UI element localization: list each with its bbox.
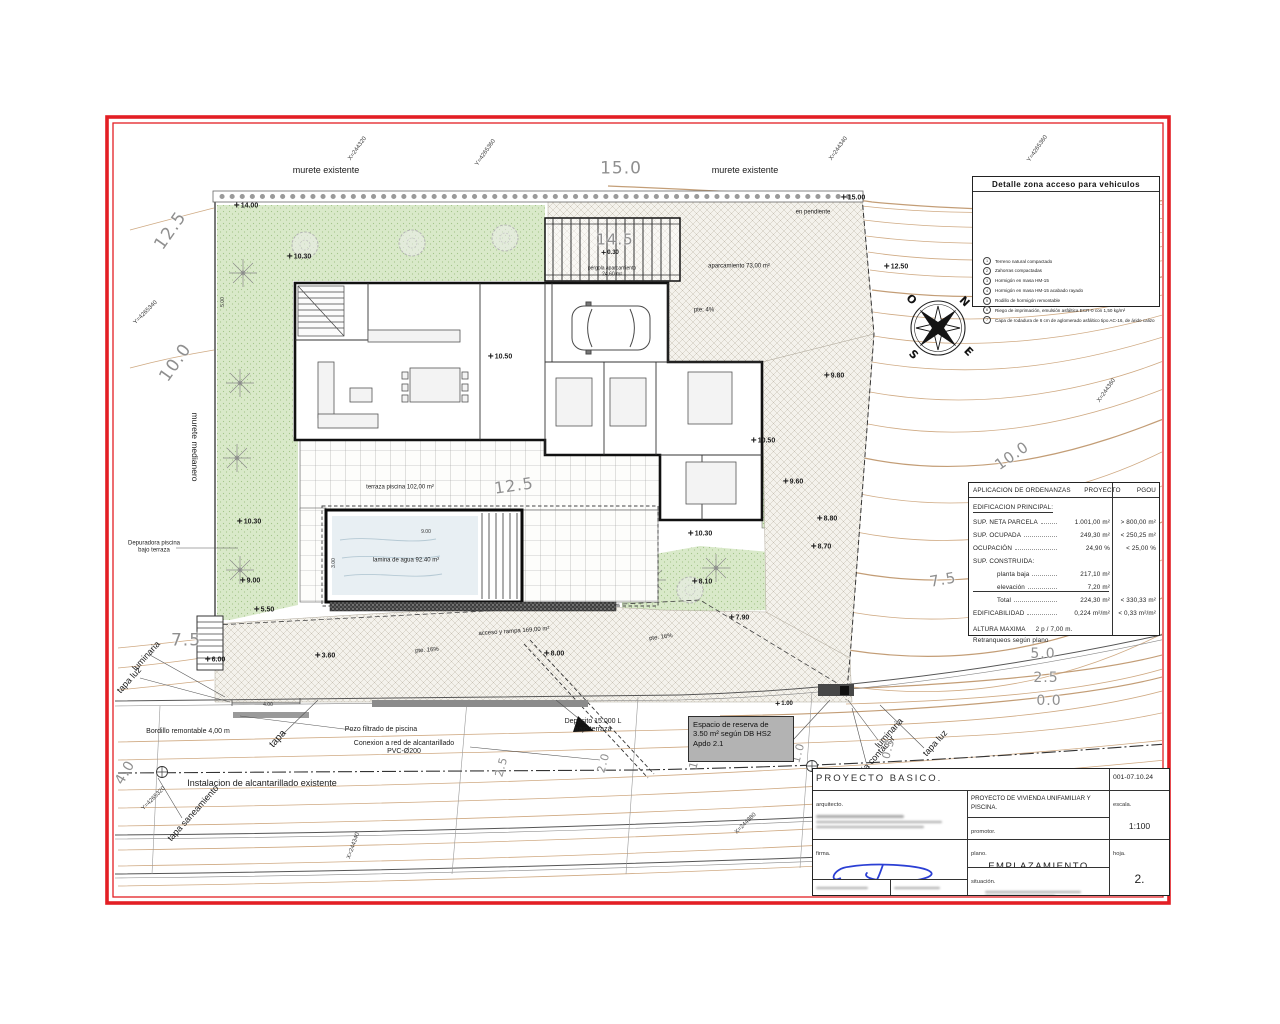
legend-item: 2Zahorras compactadas bbox=[983, 267, 1155, 275]
redacted-text bbox=[816, 815, 904, 818]
legend-text: Terreno natural compactado bbox=[995, 259, 1052, 264]
dotted-leader bbox=[1015, 549, 1057, 550]
reserve-space-note: Espacio de reserva de 3.50 m² según DB H… bbox=[688, 716, 794, 762]
legend-item: 4Hormigón en masa HM-15 acabado rayado bbox=[983, 287, 1155, 295]
scale-cell: escala. 1:100 bbox=[1109, 790, 1169, 839]
row-label: ALTURA MAXIMA bbox=[973, 626, 1026, 633]
row-label: SUP. OCUPADA bbox=[973, 532, 1021, 539]
row-label: OCUPACIÓN bbox=[973, 545, 1012, 552]
table-row: OCUPACIÓN 24,90 % < 25,00 % bbox=[969, 539, 1159, 552]
row-pgou: < 25,00 % bbox=[1110, 545, 1156, 552]
legend-text: Capa de rodadura de 6 cm de aglomerado a… bbox=[995, 318, 1155, 323]
row-label: planta baja bbox=[973, 571, 1029, 578]
compass-e: E bbox=[961, 344, 976, 359]
architect-label: arquitecto. bbox=[816, 802, 843, 808]
table-subsection: SUP. CONSTRUIDA: bbox=[969, 552, 1159, 565]
legend-item: 7Capa de rodadura de 6 cm de aglomerado … bbox=[983, 316, 1155, 324]
flow-arrow-icon bbox=[573, 716, 594, 732]
redacted-text bbox=[816, 821, 942, 823]
row-proyecto: 7,20 m² bbox=[1060, 584, 1110, 591]
sheet-number-cell: hoja. 2. bbox=[1109, 839, 1169, 895]
stairs-icon bbox=[298, 286, 344, 336]
header-proyecto: PROYECTO bbox=[1083, 487, 1121, 494]
signature-label: firma. bbox=[816, 851, 831, 857]
compass-s: S bbox=[906, 347, 921, 362]
row-label: EDIFICABILIDAD bbox=[973, 610, 1024, 617]
row-proyecto: 0,224 m²/m² bbox=[1060, 610, 1110, 617]
project-type: PROYECTO BASICO. bbox=[816, 771, 1106, 784]
location-label: situación. bbox=[971, 879, 996, 885]
detail-legend: 1Terreno natural compactado 2Zahorras co… bbox=[983, 257, 1155, 326]
dotted-leader bbox=[1028, 588, 1057, 589]
legend-item: 5Rodillo de hormigón remontable bbox=[983, 297, 1155, 305]
table-row: elevación 7,20 m² bbox=[969, 578, 1159, 591]
project-title-cell: PROYECTO DE VIVIENDA UNIFAMILIAR Y PISCI… bbox=[967, 790, 1109, 817]
vehicle-access-detail-box: Detalle zona acceso para vehiculos 1Terr… bbox=[972, 176, 1160, 307]
legend-number: 5 bbox=[983, 297, 991, 305]
date-cell: 001-07.10.24 bbox=[1109, 769, 1169, 790]
redacted-text bbox=[894, 887, 940, 889]
sheet-name-label: plano. bbox=[971, 851, 987, 857]
legend-number: 2 bbox=[983, 267, 991, 275]
row-proyecto: 217,10 m² bbox=[1060, 571, 1110, 578]
subsection-label: SUP. CONSTRUIDA: bbox=[973, 558, 1034, 565]
row-proyecto: 24,90 % bbox=[1060, 545, 1110, 552]
signature-cell: firma. bbox=[813, 839, 967, 879]
header-aplicacion: APLICACION DE ORDENANZAS bbox=[973, 487, 1071, 494]
dotted-leader bbox=[1041, 523, 1057, 524]
site-plan-sheet: { "sheet": { "frame_color": "#e31e24", "… bbox=[0, 0, 1280, 1024]
legend-number: 6 bbox=[983, 306, 991, 314]
table-row-altura: ALTURA MAXIMA 2 p / 7,00 m. bbox=[969, 620, 1159, 633]
table-row-total: Total 224,30 m² < 330,33 m² bbox=[969, 591, 1159, 604]
legend-text: Zahorras compactadas bbox=[995, 268, 1042, 273]
ordinance-table: APLICACION DE ORDENANZAS PROYECTO PGOU E… bbox=[968, 482, 1160, 636]
dotted-leader bbox=[1014, 601, 1057, 602]
dotted-leader bbox=[1027, 614, 1057, 615]
row-label: elevación bbox=[973, 584, 1025, 591]
date-field-cell bbox=[813, 879, 890, 895]
row-pgou: > 800,00 m² bbox=[1110, 519, 1156, 526]
architect-cell: arquitecto. bbox=[813, 790, 967, 839]
legend-text: Hormigón en masa HM-15 acabado rayado bbox=[995, 288, 1083, 293]
scale-label: escala. bbox=[1113, 802, 1131, 808]
pool-grate bbox=[330, 602, 616, 611]
row-pgou: < 330,33 m² bbox=[1110, 597, 1156, 604]
section-label: EDIFICACION PRINCIPAL: bbox=[973, 504, 1053, 513]
legend-item: 3Hormigón en masa HM-15 bbox=[983, 277, 1155, 285]
sheet-number: 2. bbox=[1113, 872, 1166, 886]
legend-number: 4 bbox=[983, 287, 991, 295]
signature-icon bbox=[816, 857, 964, 879]
row-proyecto: 224,30 m² bbox=[1060, 597, 1110, 604]
table-section: EDIFICACION PRINCIPAL: bbox=[969, 498, 1159, 513]
legend-item: 6Riego de imprimación, emulsión asfáltic… bbox=[983, 306, 1155, 314]
redacted-text bbox=[985, 891, 1081, 893]
pergola bbox=[545, 218, 680, 281]
legend-number: 1 bbox=[983, 257, 991, 265]
legend-text: Hormigón en masa HM-15 bbox=[995, 278, 1049, 283]
promoter-cell: promotor. bbox=[967, 817, 1109, 839]
dotted-leader bbox=[1032, 575, 1057, 576]
row-value: 2 p / 7,00 m. bbox=[1036, 626, 1073, 633]
table-row: SUP. OCUPADA 249,30 m² < 250,25 m² bbox=[969, 526, 1159, 539]
row-pgou: < 250,25 m² bbox=[1110, 532, 1156, 539]
legend-text: Rodillo de hormigón remontable bbox=[995, 298, 1060, 303]
dotted-leader bbox=[1024, 536, 1057, 537]
compass-rose-icon: N E S O bbox=[904, 292, 976, 362]
header-pgou: PGOU bbox=[1121, 487, 1156, 494]
redacted-text bbox=[816, 826, 924, 828]
table-row-retranqueos: Retranqueos según plano bbox=[969, 633, 1159, 644]
sheet-number-label: hoja. bbox=[1113, 851, 1126, 857]
murete-existente-wall bbox=[213, 191, 863, 202]
redacted-text bbox=[816, 887, 868, 889]
row-label: SUP. NETA PARCELA bbox=[973, 519, 1038, 526]
project-title: PROYECTO DE VIVIENDA UNIFAMILIAR Y PISCI… bbox=[971, 793, 1106, 812]
table-row: planta baja 217,10 m² bbox=[969, 565, 1159, 578]
exterior-stairs-icon bbox=[197, 616, 223, 670]
legend-text: Riego de imprimación, emulsión asfáltica… bbox=[995, 308, 1125, 313]
promoter-label: promotor. bbox=[971, 829, 996, 835]
table-row: EDIFICABILIDAD 0,224 m²/m² < 0,33 m²/m² bbox=[969, 604, 1159, 617]
row-label: Total bbox=[973, 597, 1011, 604]
legend-number: 3 bbox=[983, 277, 991, 285]
row-label: Retranqueos según plano bbox=[973, 637, 1049, 644]
table-row: SUP. NETA PARCELA 1.001,00 m² > 800,00 m… bbox=[969, 513, 1159, 526]
row-proyecto: 249,30 m² bbox=[1060, 532, 1110, 539]
detail-title: Detalle zona acceso para vehiculos bbox=[973, 177, 1159, 192]
legend-number: 7 bbox=[983, 316, 991, 324]
title-block: PROYECTO BASICO. 001-07.10.24 arquitecto… bbox=[812, 768, 1170, 896]
pool-water bbox=[332, 516, 478, 595]
location-cell: situación. bbox=[967, 867, 1109, 895]
sheet-name-cell: plano. EMPLAZAMIENTO bbox=[967, 839, 1109, 867]
project-type-cell: PROYECTO BASICO. bbox=[813, 769, 1109, 790]
date-field-cell bbox=[890, 879, 967, 895]
row-proyecto: 1.001,00 m² bbox=[1060, 519, 1110, 526]
scale-value: 1:100 bbox=[1113, 821, 1166, 831]
date-code: 001-07.10.24 bbox=[1113, 771, 1166, 781]
table-header: APLICACION DE ORDENANZAS PROYECTO PGOU bbox=[969, 483, 1159, 498]
row-pgou: < 0,33 m²/m² bbox=[1110, 610, 1156, 617]
legend-item: 1Terreno natural compactado bbox=[983, 257, 1155, 265]
